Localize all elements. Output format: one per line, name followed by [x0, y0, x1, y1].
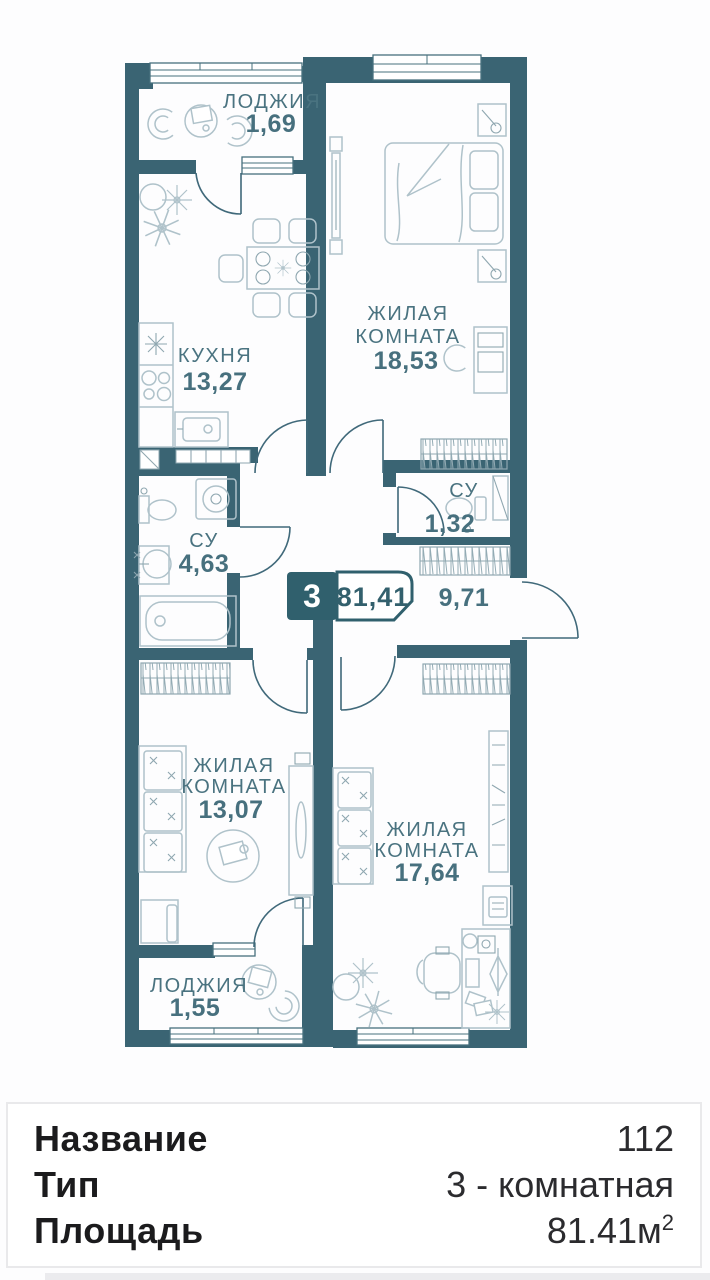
floor-plan: ЛОДЖИЯ 1,69 ЖИЛАЯ КОМНАТА 18,53 КУХНЯ 13…	[0, 0, 710, 1080]
info-value-area: 81.41м2	[547, 1210, 674, 1252]
badge-room-count: 3	[303, 578, 321, 614]
label-room-right-1: ЖИЛАЯ	[386, 819, 467, 841]
label-room-left-1: ЖИЛАЯ	[193, 755, 274, 777]
info-value-type: 3 - комнатная	[446, 1164, 674, 1206]
info-card: Название 112 Тип 3 - комнатная Площадь 8…	[6, 1102, 702, 1268]
label-kitchen: КУХНЯ	[178, 345, 252, 367]
window-loggia-top	[150, 63, 302, 83]
door-entrance	[522, 582, 578, 638]
info-row-area: Площадь 81.41м2	[34, 1210, 674, 1252]
area-room-left: 13,07	[198, 796, 263, 824]
area-wc: 1,32	[425, 510, 476, 538]
badge-total-area: 81,41	[337, 582, 410, 612]
label-bathroom: СУ	[189, 530, 218, 552]
window-bedroom-top	[373, 55, 481, 80]
area-superscript: 2	[662, 1210, 674, 1235]
label-wc: СУ	[449, 480, 478, 502]
info-label-area: Площадь	[34, 1210, 204, 1252]
apartment-card-page: ЛОДЖИЯ 1,69 ЖИЛАЯ КОМНАТА 18,53 КУХНЯ 13…	[0, 0, 710, 1280]
total-area-badge: 3 81,41	[287, 572, 412, 620]
door-room-left	[253, 660, 307, 713]
door-bedroom	[330, 420, 383, 473]
door-room-right	[341, 656, 395, 710]
window-room-right-bottom	[357, 1028, 469, 1045]
info-row-type: Тип 3 - комнатная	[34, 1164, 674, 1206]
info-label-type: Тип	[34, 1164, 100, 1206]
window-balcony-door-top	[242, 157, 293, 174]
area-loggia-bottom: 1,55	[170, 994, 221, 1022]
area-kitchen: 13,27	[182, 368, 247, 396]
area-room-right: 17,64	[394, 859, 459, 887]
area-bedroom: 18,53	[373, 347, 438, 375]
furniture-hallway	[420, 547, 510, 575]
door-balcony-top	[196, 173, 241, 214]
window-loggia-bottom	[170, 1028, 303, 1044]
door-kitchen	[255, 420, 307, 473]
label-bedroom-1: ЖИЛАЯ	[367, 303, 448, 325]
bottom-strip	[45, 1273, 710, 1280]
window-room-left-loggia	[213, 943, 255, 956]
area-hallway: 9,71	[439, 584, 490, 612]
info-label-name: Название	[34, 1118, 208, 1160]
area-loggia-top: 1,69	[246, 110, 297, 138]
furniture-kitchen	[137, 184, 319, 447]
door-loggia-bottom	[254, 898, 303, 947]
label-room-left-2: КОМНАТА	[181, 776, 286, 798]
area-bathroom: 4,63	[179, 550, 230, 578]
label-bedroom-2: КОМНАТА	[355, 326, 460, 348]
info-row-name: Название 112	[34, 1118, 674, 1160]
info-value-name: 112	[617, 1118, 674, 1160]
furniture-bedroom	[330, 104, 507, 469]
furniture-loggia-bottom	[242, 965, 300, 1022]
door-bathroom	[240, 527, 290, 577]
